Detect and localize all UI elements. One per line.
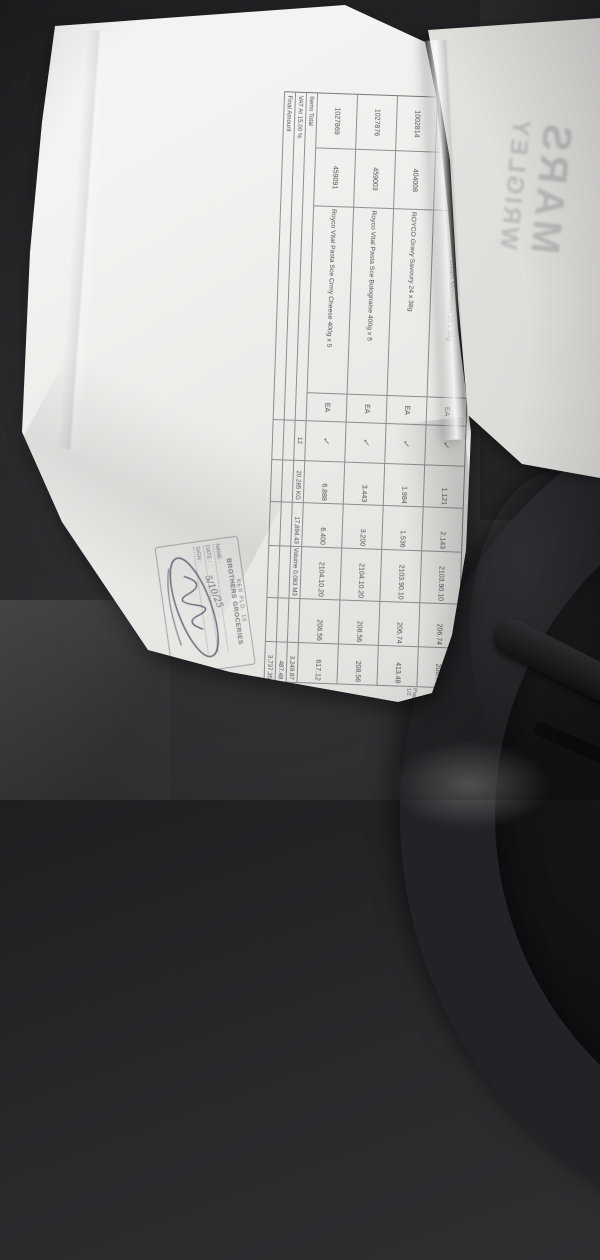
empty-cell [266, 546, 279, 598]
amount-cell: 206.74 [416, 647, 457, 688]
empty-cell [277, 546, 290, 598]
unit-price-cell: 208.56 [338, 600, 380, 645]
empty-cell [265, 598, 278, 642]
page-number: Page 1/2 [405, 688, 417, 701]
amount-cell: 617.12 [296, 643, 337, 684]
unit-price-cell: 206.74 [418, 603, 460, 648]
total-volume-cell: Volume 0.083 M3 [288, 547, 301, 599]
empty-cell [287, 599, 300, 643]
unit-price-cell: 208.56 [298, 599, 340, 644]
items-total-amount: 3,249.87 [285, 643, 297, 683]
tariff-cell: 2103.90.10 [419, 551, 461, 604]
tariff-cell: 2104.10.20 [339, 549, 381, 602]
amount-cell: 413.48 [376, 646, 417, 687]
amount-cell: 208.56 [336, 644, 377, 685]
empty-cell [276, 598, 289, 642]
tariff-cell: 2103.90.10 [379, 550, 421, 603]
receipt-stamp: KER PLD. 10 BROTHERS GROCERIES NAME : DA… [154, 536, 255, 676]
vat-amount: 487.48 [274, 642, 286, 682]
final-amount-value: 3,737.35 [263, 642, 275, 682]
unit-price-cell: 206.74 [378, 602, 420, 647]
tariff-cell: 2104.10.20 [299, 547, 341, 600]
overlay-paper-wrapper: MARS WRIGLEY [0, 0, 600, 520]
